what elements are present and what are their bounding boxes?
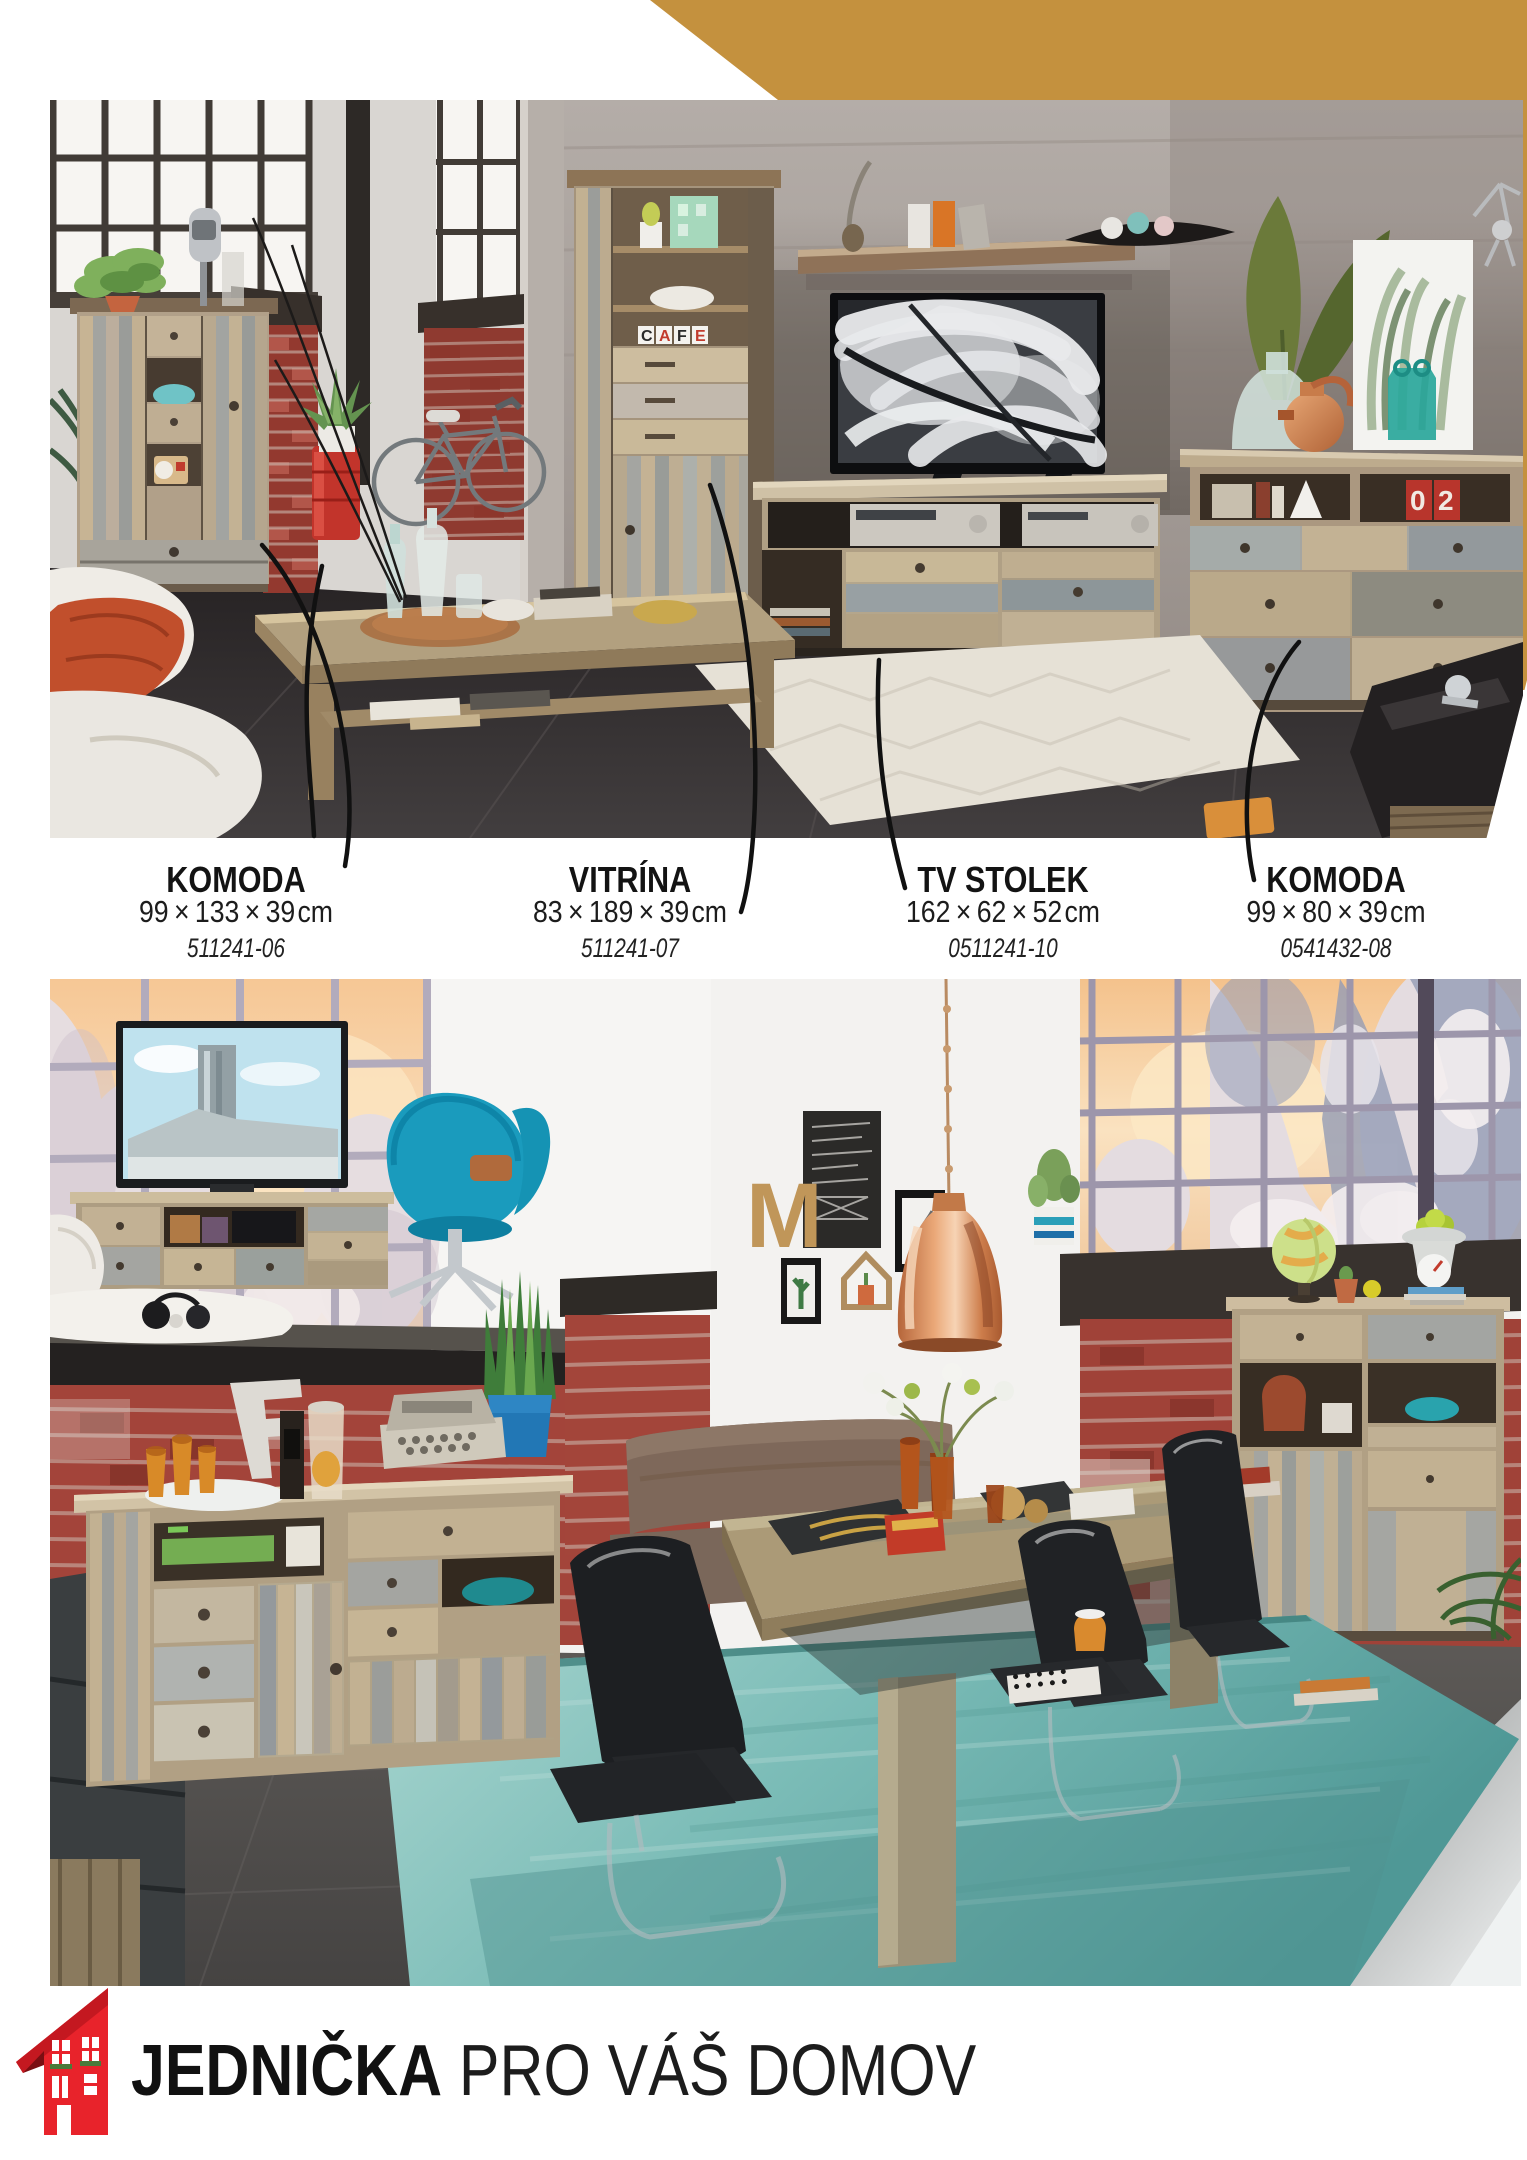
svg-text:M: M (746, 1165, 823, 1267)
